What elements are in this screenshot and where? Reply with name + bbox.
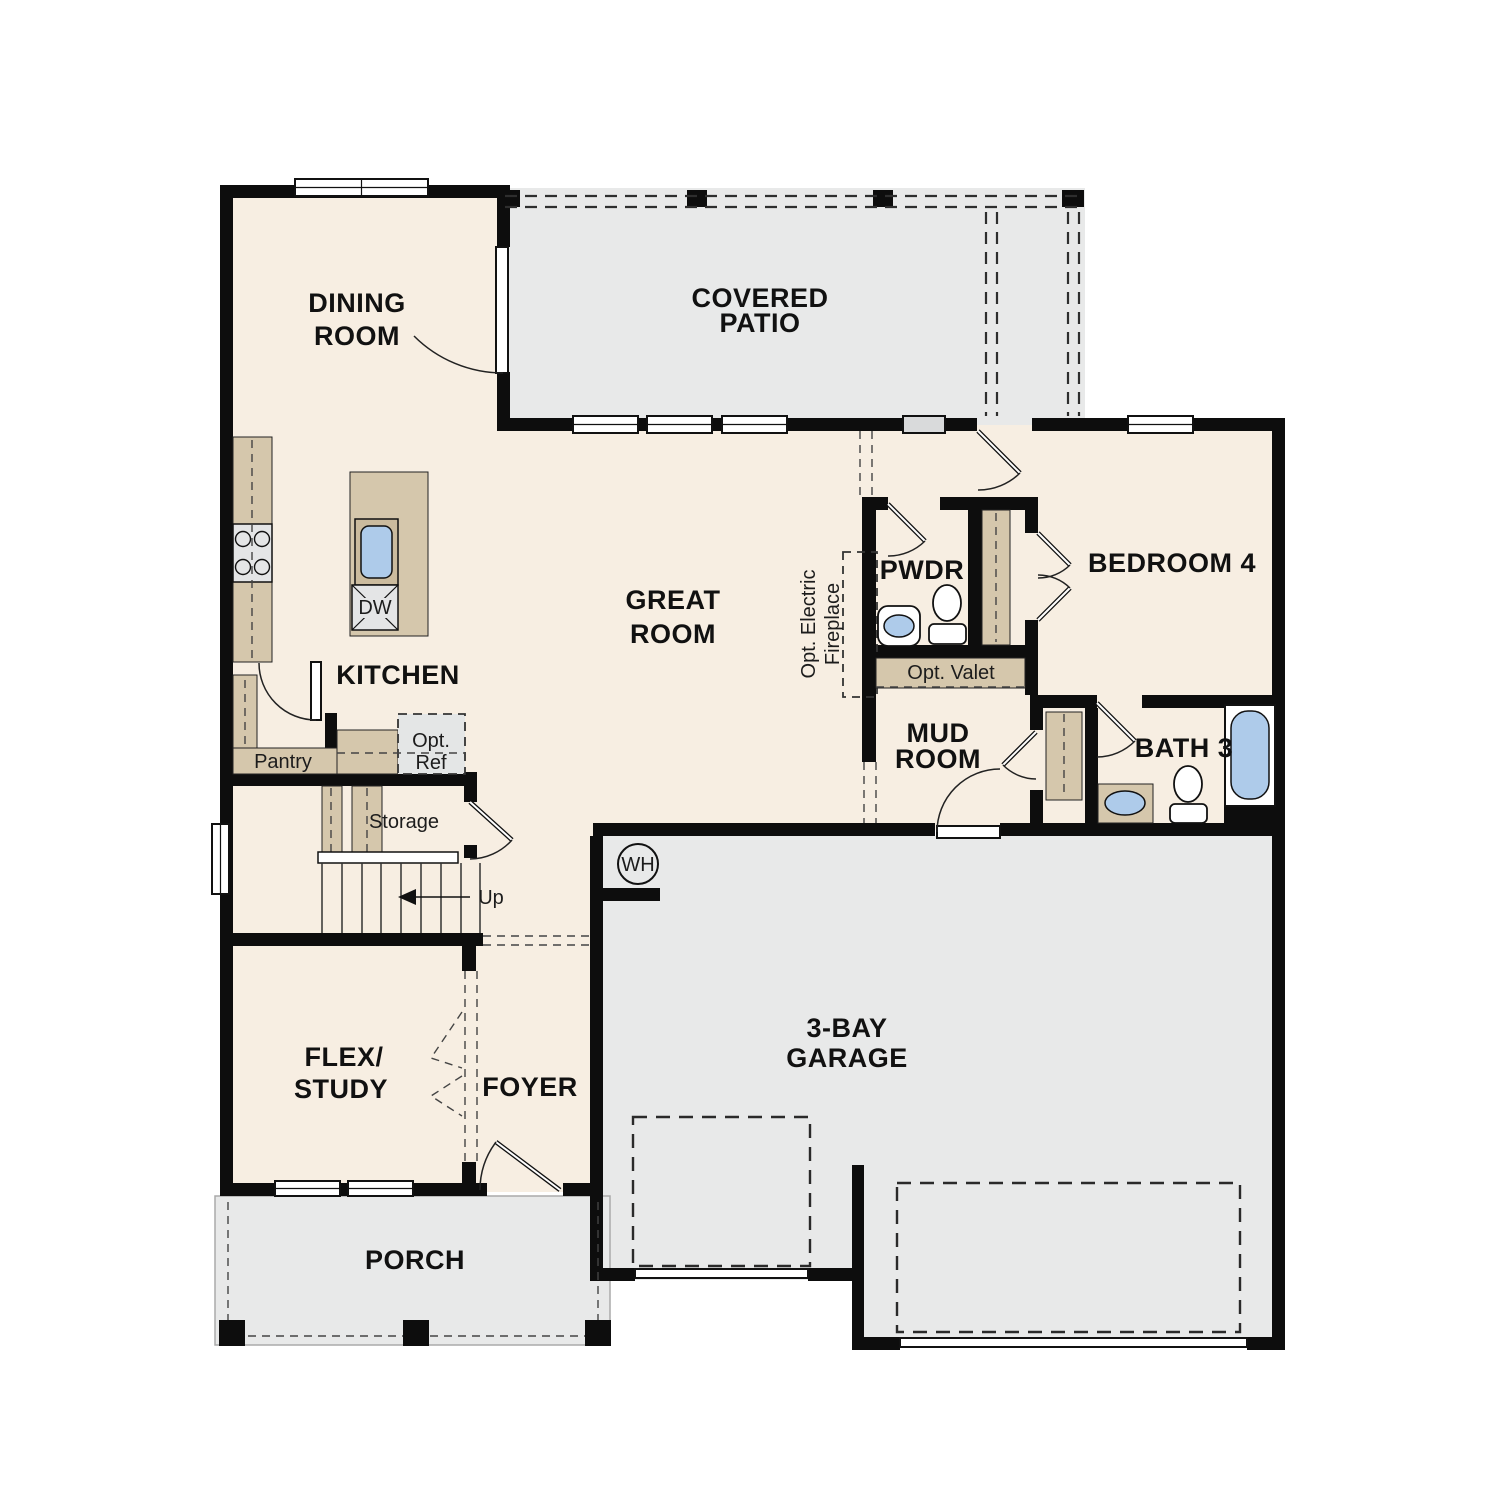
window-greatroom-patio-3 bbox=[722, 416, 787, 433]
stair-landing bbox=[318, 852, 458, 863]
wall-flex-foyer-stub-bottom bbox=[462, 1162, 476, 1186]
wall-garage-bay-divider bbox=[852, 1165, 864, 1350]
optional-refrigerator: Opt. Ref bbox=[398, 714, 465, 774]
floorplan-drawing: DW Pantry Opt. Ref Storage bbox=[0, 0, 1500, 1500]
wall-garage-front-left-a bbox=[590, 1268, 635, 1281]
window-hall-patio bbox=[903, 416, 945, 433]
wall-pwdr-bottom bbox=[862, 645, 1038, 658]
window-bedroom4-top bbox=[1128, 416, 1193, 433]
pantry-label: Pantry bbox=[254, 751, 312, 773]
greatroom-label-line1: GREAT bbox=[626, 585, 721, 615]
wall-left-exterior bbox=[220, 185, 233, 1196]
wall-waterheater-stub bbox=[603, 888, 660, 901]
wall-closet-stub-top bbox=[1025, 510, 1038, 533]
wall-mudroom-right-lower bbox=[1030, 790, 1043, 823]
wall-garage-front-right-a bbox=[852, 1337, 900, 1350]
garage-door-double bbox=[900, 1338, 1247, 1347]
wall-tub-backing bbox=[1224, 806, 1285, 836]
wall-right-exterior bbox=[1272, 431, 1285, 1350]
patio-post-1 bbox=[500, 190, 520, 207]
wall-garage-left bbox=[590, 836, 603, 1280]
opt-fireplace-label-line2: Fireplace bbox=[822, 583, 844, 665]
opt-ref-label-line1: Opt. bbox=[412, 730, 450, 752]
window-flex-front-1 bbox=[275, 1181, 340, 1196]
patio-post-4 bbox=[1062, 190, 1084, 207]
dishwasher-label: DW bbox=[358, 597, 391, 619]
porch-post-1 bbox=[219, 1320, 245, 1346]
island-sink bbox=[361, 526, 392, 578]
wall-pwdr-top-left bbox=[862, 497, 888, 510]
storage-label: Storage bbox=[369, 811, 439, 833]
patio-label-line2: PATIO bbox=[720, 308, 801, 338]
foyer-label: FOYER bbox=[482, 1072, 578, 1102]
wall-closet-stub-bottom bbox=[1025, 620, 1038, 695]
wall-bath3-left bbox=[1085, 708, 1098, 823]
flex-label-line1: FLEX/ bbox=[304, 1042, 383, 1072]
kitchen-island: DW bbox=[350, 472, 428, 636]
wall-pwdr-right bbox=[968, 510, 982, 653]
wall-storage-right-lower bbox=[464, 845, 477, 858]
stair-up-label: Up bbox=[478, 887, 504, 909]
window-left-stair bbox=[212, 824, 229, 894]
window-dining-top bbox=[295, 179, 428, 196]
dining-label-line1: DINING bbox=[308, 288, 406, 318]
pwdr-label: PWDR bbox=[880, 555, 965, 585]
pwdr-sink bbox=[884, 615, 914, 637]
opt-ref-label-line2: Ref bbox=[415, 752, 447, 774]
bath3-sink bbox=[1105, 791, 1145, 815]
wall-flex-foyer-stub-top bbox=[462, 935, 476, 971]
kitchen-label: KITCHEN bbox=[336, 660, 460, 690]
bath3-label: BATH 3 bbox=[1135, 733, 1234, 763]
window-greatroom-patio-1 bbox=[573, 416, 638, 433]
storage-chase-a bbox=[322, 786, 342, 856]
porch-label: PORCH bbox=[365, 1245, 465, 1275]
opt-valet-label: Opt. Valet bbox=[907, 662, 995, 684]
wall-bed-bath-divider-left bbox=[1030, 695, 1097, 708]
window-greatroom-patio-2 bbox=[647, 416, 712, 433]
window-flex-front-2 bbox=[348, 1181, 413, 1196]
greatroom-label-line2: ROOM bbox=[630, 619, 716, 649]
wall-mudroom-right-upper bbox=[1030, 708, 1043, 730]
wall-garage-front-left-b bbox=[808, 1268, 856, 1281]
water-heater: WH bbox=[618, 844, 658, 884]
flex-label-line2: STUDY bbox=[294, 1074, 388, 1104]
bedroom4-label: BEDROOM 4 bbox=[1088, 548, 1256, 578]
garage-door-single bbox=[635, 1269, 808, 1278]
wall-dining-patio-lower bbox=[497, 372, 510, 425]
garage-label-line2: GARAGE bbox=[786, 1043, 908, 1073]
wall-storage-right-upper bbox=[464, 772, 477, 802]
exterior-mask bbox=[1085, 140, 1295, 418]
wall-front-foyer bbox=[563, 1183, 603, 1196]
opt-fireplace-label-line1: Opt. Electric bbox=[798, 570, 820, 679]
wall-greatroom-hall bbox=[862, 497, 876, 762]
patio-post-3 bbox=[873, 190, 893, 207]
porch-post-3 bbox=[585, 1320, 611, 1346]
left-wing-floor-area bbox=[226, 830, 600, 1192]
patio-post-2 bbox=[687, 190, 707, 207]
water-heater-label: WH bbox=[621, 854, 654, 876]
dining-label-line2: ROOM bbox=[314, 321, 400, 351]
optional-valet: Opt. Valet bbox=[876, 658, 1025, 688]
wall-garage-top-left bbox=[593, 823, 935, 836]
wall-stair-bottom bbox=[220, 933, 483, 946]
porch-post-2 bbox=[403, 1320, 429, 1346]
wall-garage-front-right-b bbox=[1247, 1337, 1285, 1350]
floorplan-page: DW Pantry Opt. Ref Storage bbox=[0, 0, 1500, 1500]
garage-label-line1: 3-BAY bbox=[806, 1013, 887, 1043]
dishwasher: DW bbox=[352, 585, 398, 630]
wall-pwdr-top-right bbox=[940, 497, 1038, 510]
kitchen-counter-ref bbox=[337, 730, 398, 774]
mudroom-label-line2: ROOM bbox=[895, 744, 981, 774]
bath3-tub-basin bbox=[1231, 711, 1269, 799]
